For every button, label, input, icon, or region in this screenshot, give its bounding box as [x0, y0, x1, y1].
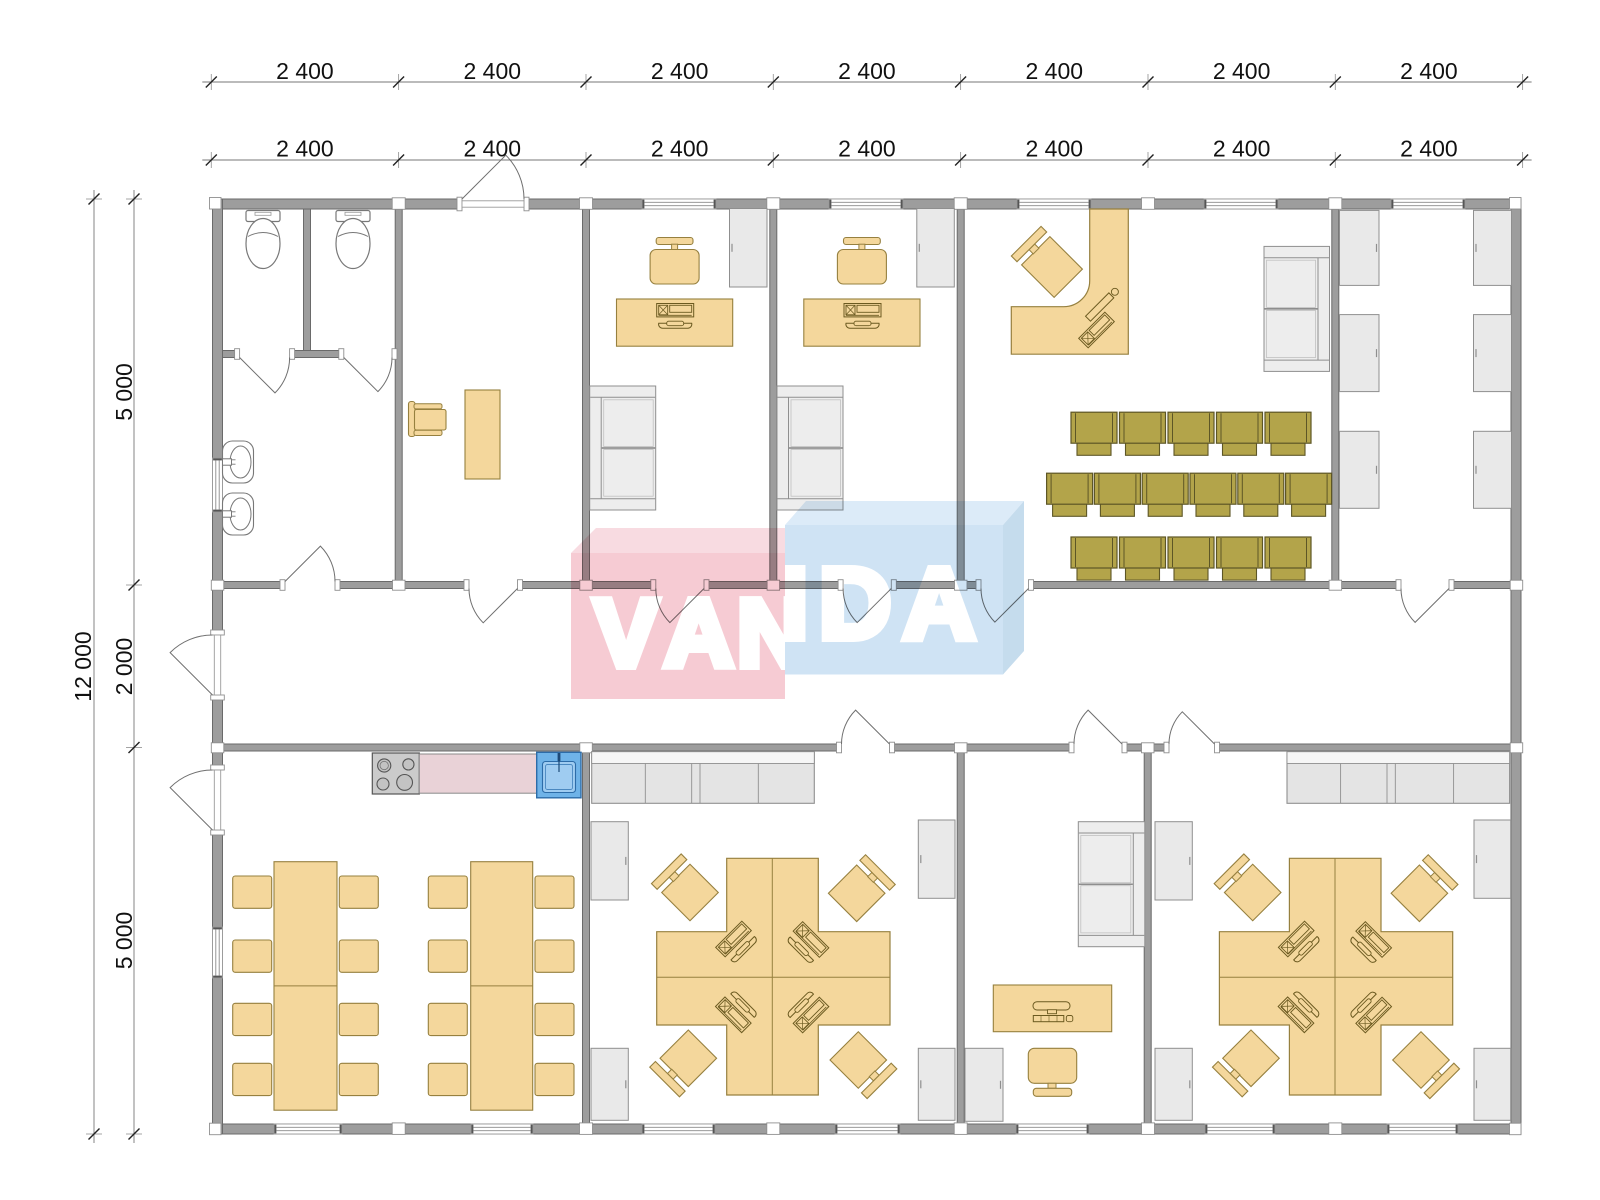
svg-text:2 400: 2 400 [838, 58, 896, 84]
svg-text:2 000: 2 000 [111, 638, 137, 696]
svg-text:2 400: 2 400 [1213, 58, 1271, 84]
svg-text:2 400: 2 400 [276, 58, 334, 84]
svg-text:2 400: 2 400 [651, 58, 709, 84]
svg-text:2 400: 2 400 [464, 136, 522, 162]
svg-text:2 400: 2 400 [1213, 136, 1271, 162]
svg-text:2 400: 2 400 [1400, 58, 1458, 84]
svg-text:2 400: 2 400 [838, 136, 896, 162]
svg-text:2 400: 2 400 [1026, 58, 1084, 84]
svg-text:2 400: 2 400 [1026, 136, 1084, 162]
svg-text:2 400: 2 400 [651, 136, 709, 162]
svg-text:5 000: 5 000 [111, 363, 137, 421]
svg-text:12 000: 12 000 [70, 631, 96, 701]
svg-text:5 000: 5 000 [111, 912, 137, 970]
svg-text:2 400: 2 400 [464, 58, 522, 84]
svg-text:2 400: 2 400 [1400, 136, 1458, 162]
svg-text:2 400: 2 400 [276, 136, 334, 162]
